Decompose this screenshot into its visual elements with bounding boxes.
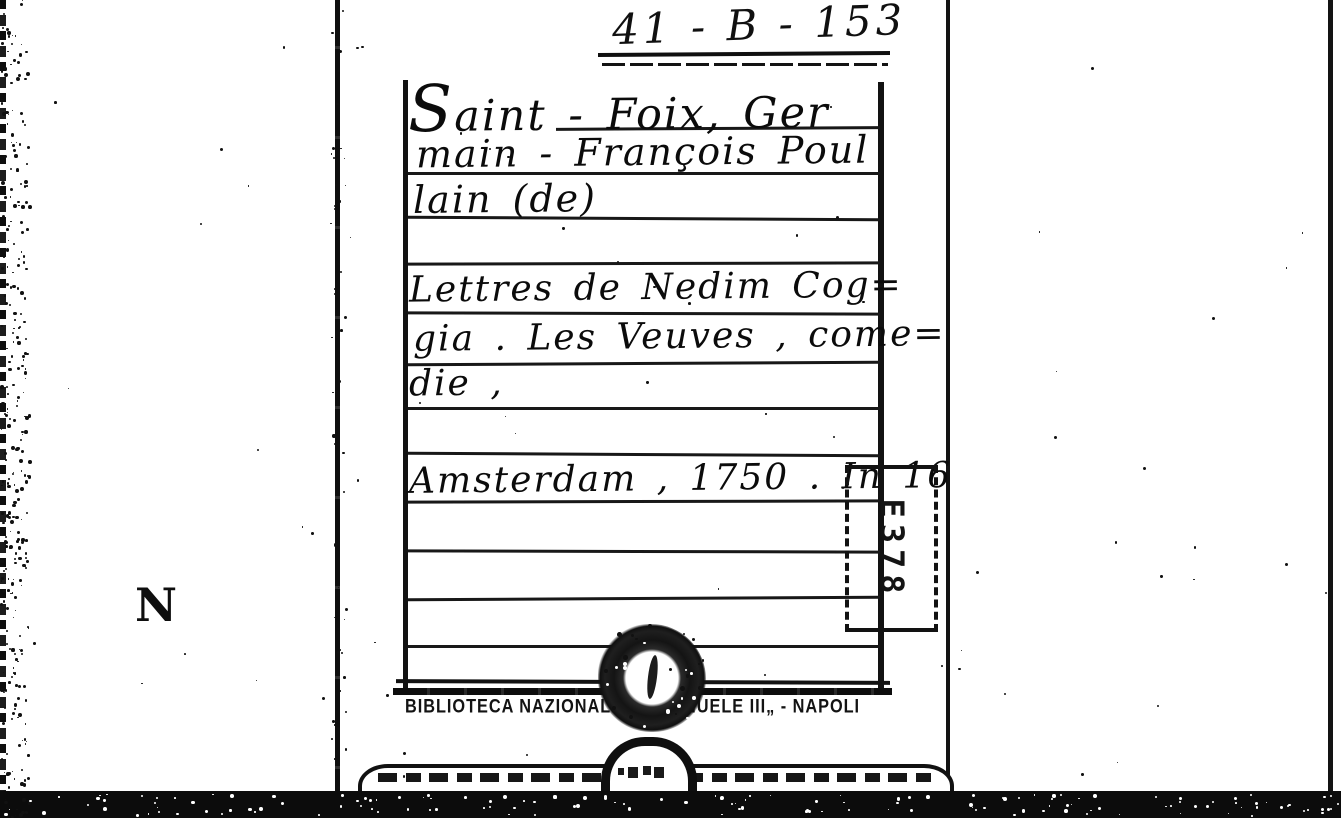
ruled-line [408,549,880,553]
scan-page: 41 - B - 153 Saint - Foix, Ger main - Fr… [0,0,1341,818]
ruled-line [408,407,880,410]
title-line-2: gia . Les Veuves , come= [413,313,946,360]
rod-hole-marks [618,768,624,775]
right-edge-line [1328,0,1333,818]
title-line-3: die , [409,363,504,405]
hole-punch-mark [645,655,659,700]
call-number: 41 - B - 153 [611,0,913,54]
ruled-line [408,596,880,601]
drawer-guide-letter: N [135,578,178,632]
card-divider-line [335,0,340,792]
title-line-1: Lettres de Nedim Cog= [409,264,903,310]
left-edge-line [0,0,6,818]
author-line-3: lain (de) [413,176,597,222]
hole-punch [598,624,706,732]
drawer-edge-line [946,0,950,792]
call-number-underline [598,51,890,57]
call-number-underline [602,63,888,66]
scan-bottom-bar [0,791,1341,818]
shelfmark-stamp-code: E378 [873,498,911,599]
rod-hole-notch [601,737,697,794]
author-line-2: main - François Poul [416,128,870,177]
shelfmark-stamp-box: E378 [845,465,938,632]
